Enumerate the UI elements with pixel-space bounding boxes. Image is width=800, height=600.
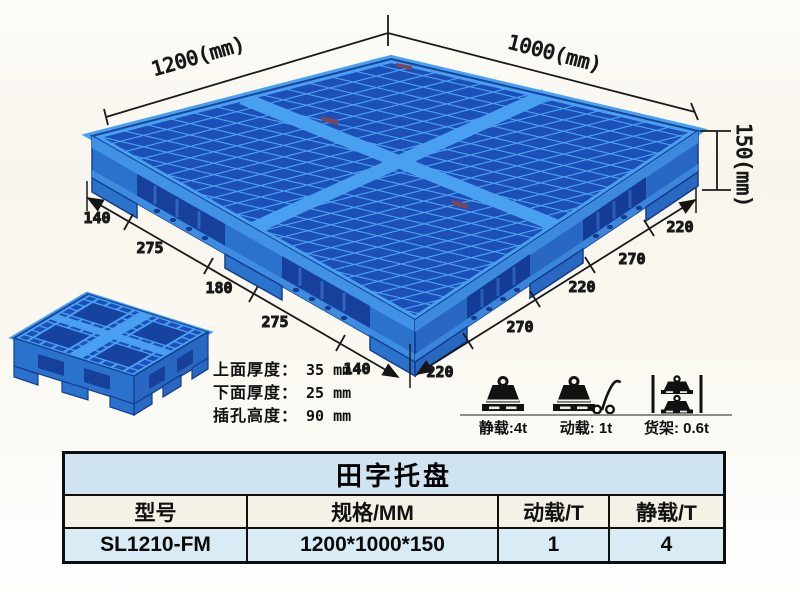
note-value: 35 mm bbox=[306, 361, 351, 379]
cell-static-load: 4 bbox=[608, 529, 723, 561]
cell-dynamic-load: 1 bbox=[497, 529, 608, 561]
header-dynamic-load: 动载/T bbox=[497, 496, 608, 527]
dim-left-3: 180 bbox=[205, 279, 232, 297]
dynamic-load: 动载: 1t bbox=[550, 374, 622, 438]
static-load: 静载:4t bbox=[475, 374, 531, 438]
rack-load-icon bbox=[649, 374, 705, 414]
dim-right-4: 270 bbox=[618, 250, 645, 268]
spec-table-data-row: SL1210-FM 1200*1000*150 1 4 bbox=[65, 527, 723, 561]
dim-right-2: 270 bbox=[506, 318, 533, 336]
height-dimension-bracket bbox=[700, 131, 731, 190]
note-bottom-thickness: 下面厚度： 25 mm bbox=[213, 379, 351, 397]
length-dimension-label: 1200(mm) bbox=[148, 31, 247, 81]
note-value: 90 mm bbox=[306, 407, 351, 425]
spec-table-title: 田字托盘 bbox=[65, 454, 723, 494]
dim-left-2: 275 bbox=[136, 239, 163, 257]
header-model: 型号 bbox=[65, 496, 246, 527]
dim-left-4: 275 bbox=[261, 313, 288, 331]
height-dimension-label: 150(mm) bbox=[732, 123, 756, 207]
note-fork-height: 插孔高度： 90 mm bbox=[213, 402, 351, 420]
width-dimension-label: 1000(mm) bbox=[505, 30, 604, 77]
cell-model: SL1210-FM bbox=[65, 529, 246, 561]
note-label: 上面厚度： bbox=[213, 356, 298, 380]
dim-left-1: 140 bbox=[83, 209, 110, 227]
header-spec: 规格/MM bbox=[246, 496, 497, 527]
note-label: 插孔高度： bbox=[213, 402, 298, 426]
load-capacity-icons: 静载:4t 动载: 1t bbox=[458, 374, 736, 438]
spec-table-header-row: 型号 规格/MM 动载/T 静载/T bbox=[65, 494, 723, 527]
small-pallet bbox=[14, 294, 208, 415]
spec-table: 田字托盘 型号 规格/MM 动载/T 静载/T SL1210-FM 1200*1… bbox=[62, 451, 726, 564]
thickness-notes: 上面厚度： 35 mm 下面厚度： 25 mm 插孔高度： 90 mm bbox=[213, 356, 351, 425]
dynamic-load-icon bbox=[550, 374, 622, 414]
rack-load: 货架: 0.6t bbox=[644, 374, 709, 438]
rack-load-label: 货架: 0.6t bbox=[644, 417, 709, 438]
cell-spec: 1200*1000*150 bbox=[246, 529, 497, 561]
pallet-datasheet: 1200(mm) 1000(mm) 150(mm) 140 275 180 27… bbox=[0, 0, 800, 600]
static-load-label: 静载:4t bbox=[479, 417, 527, 438]
note-value: 25 mm bbox=[306, 384, 351, 402]
header-static-load: 静载/T bbox=[608, 496, 723, 527]
dynamic-load-label: 动载: 1t bbox=[560, 417, 613, 438]
static-load-icon bbox=[475, 374, 531, 414]
dim-right-5: 220 bbox=[666, 218, 693, 236]
note-label: 下面厚度： bbox=[213, 379, 298, 403]
dim-right-3: 220 bbox=[568, 278, 595, 296]
note-top-thickness: 上面厚度： 35 mm bbox=[213, 356, 351, 374]
dim-right-1: 220 bbox=[426, 363, 453, 381]
